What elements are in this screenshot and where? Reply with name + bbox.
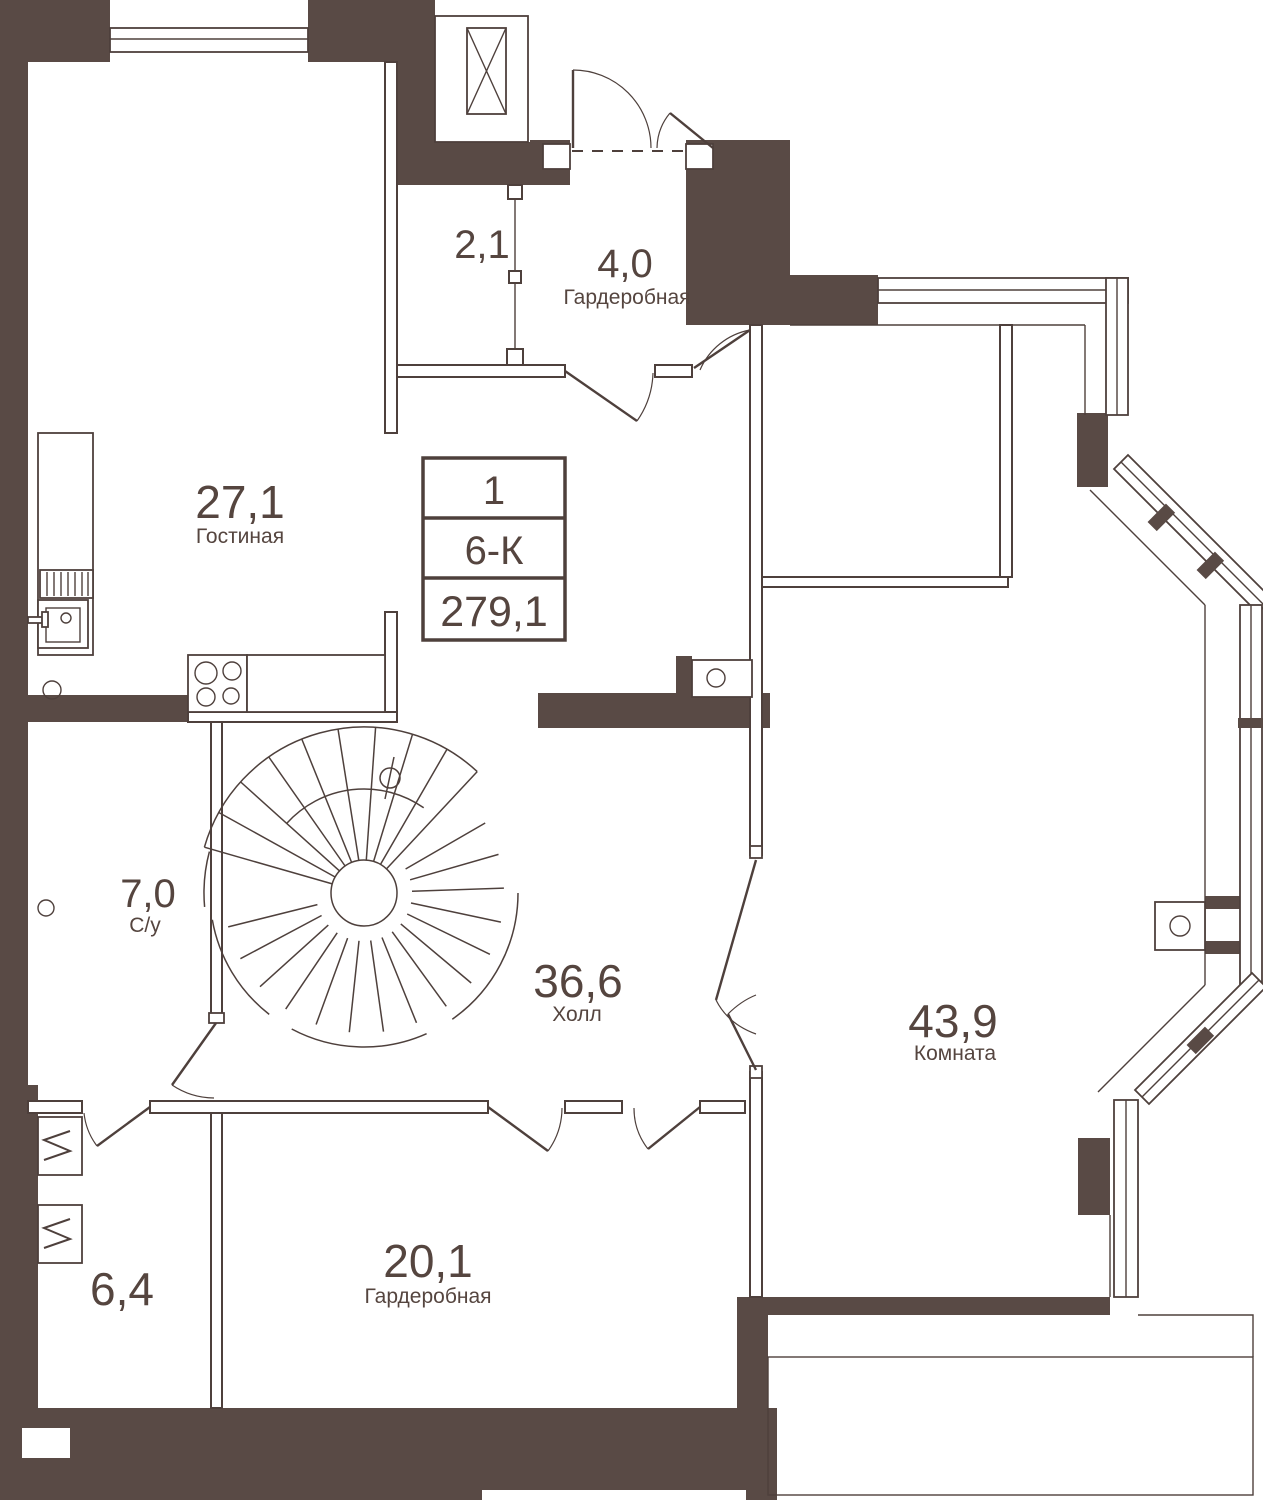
floor-plan: 2,1 4,0 Гардеробная 27,1 Гостиная 7,0 С/… (0, 0, 1263, 1500)
terrace-outline (768, 1315, 1253, 1495)
window-bay-right-middle (1205, 605, 1263, 987)
window-living-top (110, 28, 308, 52)
kitchen (28, 433, 385, 712)
washing-machines (38, 1117, 82, 1263)
living-room-name: Гостиная (196, 525, 284, 548)
window-bay-diagonal-upper (1090, 455, 1263, 613)
door-wardrobe-bottom-right (634, 1107, 700, 1149)
laundry-area: 6,4 (90, 1263, 154, 1315)
room-labels: 2,1 4,0 Гардеробная 27,1 Гостиная 7,0 С/… (90, 223, 998, 1315)
door-wardrobe-bottom-left (488, 1107, 562, 1151)
entrance-door (543, 70, 713, 169)
room-area: 43,9 (908, 995, 998, 1047)
partitions (28, 62, 1012, 1408)
room-name: Комната (914, 1042, 997, 1065)
exterior-walls (0, 0, 1240, 1500)
wardrobe-top-name: Гардеробная (563, 286, 690, 309)
unit-total-area: 279,1 (440, 588, 548, 636)
door-room-north (694, 330, 750, 370)
window-bay-diagonal-lower (1098, 973, 1263, 1104)
stove-icon (188, 655, 247, 712)
double-door-room (716, 846, 762, 1078)
door-laundry (84, 1107, 150, 1146)
hall-name: Холл (552, 1003, 602, 1026)
radiator-icon (1155, 902, 1205, 950)
bathroom-name: С/у (129, 914, 161, 937)
elevator-shaft (435, 16, 528, 142)
unit-number: 1 (483, 469, 505, 513)
door-bathroom (172, 1013, 224, 1098)
door-wardrobe-top (565, 371, 653, 421)
unit-info-box: 1 6-К 279,1 (423, 458, 565, 640)
bathroom-area: 7,0 (120, 872, 176, 916)
hall-area: 36,6 (533, 955, 623, 1007)
dish-drainer-icon (40, 570, 93, 598)
vent-box-icon (692, 660, 752, 697)
wardrobe-bottom-area: 20,1 (383, 1235, 473, 1287)
living-room-area: 27,1 (195, 476, 285, 528)
spiral-staircase (204, 727, 518, 1047)
wall-outlet-icon (38, 900, 54, 916)
washing-machine-icon (38, 1205, 82, 1263)
unit-layout: 6-К (465, 529, 525, 573)
corridor-area: 2,1 (454, 223, 510, 267)
washing-machine-icon (38, 1117, 82, 1175)
wardrobe-top-area: 4,0 (597, 242, 653, 286)
window-bay-right-lower (1110, 1100, 1138, 1297)
kitchen-counter-bottom (247, 655, 385, 712)
floor-plan-svg: 2,1 4,0 Гардеробная 27,1 Гостиная 7,0 С/… (0, 0, 1263, 1500)
sink-icon (28, 600, 88, 648)
wardrobe-bottom-name: Гардеробная (364, 1285, 491, 1308)
